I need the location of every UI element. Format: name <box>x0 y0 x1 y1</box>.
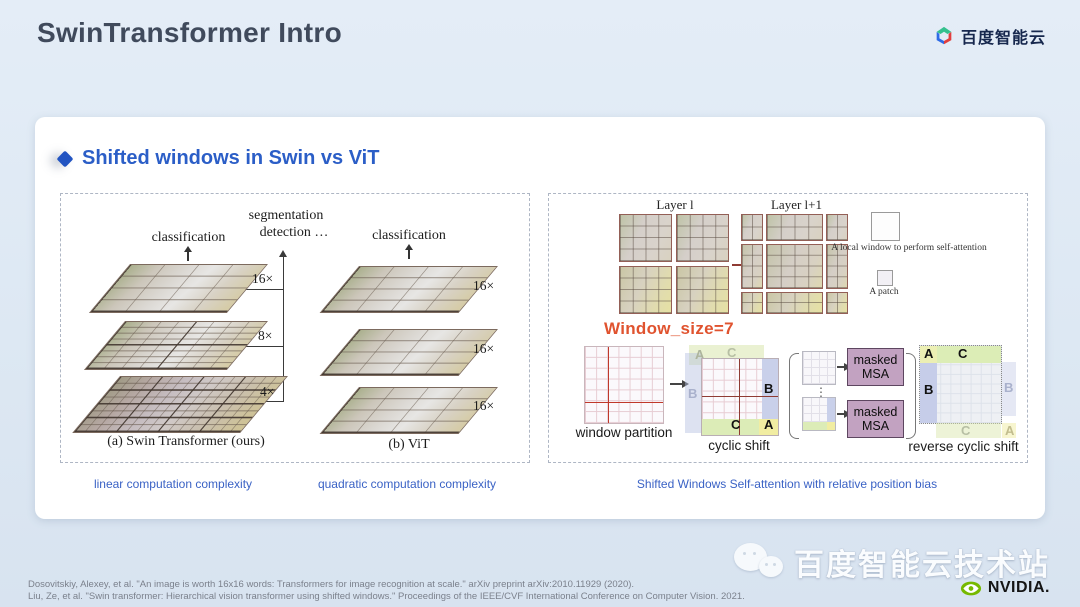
legend-patch-label: A patch <box>839 287 929 299</box>
swin-detection-label: detection … <box>229 225 359 241</box>
connector-stub <box>241 346 284 347</box>
connector-stub <box>245 289 284 290</box>
layer-l-label: Layer l <box>635 197 715 213</box>
swin-feature-map-4x <box>72 376 288 433</box>
cyclic-shift-label: cyclic shift <box>689 438 789 453</box>
swin-scale-8x: 8× <box>258 328 272 344</box>
label-b: B <box>764 381 773 396</box>
arrow-right-icon <box>837 366 845 368</box>
nvidia-logo: NVIDIA. <box>960 579 1050 597</box>
vit-feature-map-2 <box>320 329 498 376</box>
baidu-cloud-logo-icon <box>933 25 955 47</box>
note-shifted-windows: Shifted Windows Self-attention with rela… <box>597 477 977 491</box>
citation-line-2: Liu, Ze, et al. "Swin transformer: Hiera… <box>28 591 745 602</box>
ghost-label-b: B <box>688 386 697 401</box>
vit-caption: (b) ViT <box>349 437 469 453</box>
window-batch-plain <box>802 351 836 385</box>
layer-l-image <box>619 214 729 314</box>
vit-scale-16x: 16× <box>473 341 494 357</box>
nvidia-wordmark: NVIDIA. <box>988 579 1050 597</box>
diamond-bullet-icon <box>57 150 74 167</box>
masked-msa-box: masked MSA <box>847 400 904 438</box>
arrow-right-icon <box>670 383 683 385</box>
content-card: Shifted windows in Swin vs ViT classific… <box>35 117 1045 519</box>
arrow-up-icon <box>187 248 189 261</box>
note-linear-complexity: linear computation complexity <box>63 477 283 491</box>
nvidia-eye-icon <box>960 581 982 596</box>
label-a: A <box>924 346 933 361</box>
label-b: B <box>924 382 933 397</box>
arrow-up-icon <box>408 246 410 259</box>
brand-logo: 百度智能云 <box>933 24 1046 48</box>
slide-background: SwinTransformer Intro 百度智能云 Shifted wind… <box>0 0 1080 607</box>
legend-window-label: A local window to perform self-attention <box>819 243 999 255</box>
masked-msa-box: masked MSA <box>847 348 904 386</box>
swin-segmentation-label: segmentation <box>221 208 351 224</box>
page-title: SwinTransformer Intro <box>37 17 342 49</box>
reverse-cyclic-shift-label: reverse cyclic shift <box>901 439 1026 454</box>
label-a: A <box>764 417 773 432</box>
swin-feature-map-16x <box>89 264 268 313</box>
swin-scale-4x: 4× <box>260 384 274 400</box>
layer-l1-image <box>741 214 848 314</box>
window-size-label: Window_size=7 <box>604 319 734 339</box>
ghost-label-c: C <box>961 423 970 438</box>
section-heading-row: Shifted windows in Swin vs ViT <box>59 147 379 170</box>
swin-feature-map-8x <box>84 321 268 370</box>
window-partition-label: window partition <box>554 425 694 440</box>
swin-scale-16x: 16× <box>252 271 273 287</box>
legend-patch-square <box>877 270 893 286</box>
vit-scale-16x: 16× <box>473 398 494 414</box>
watermark-text: 百度智能云技术站 <box>794 540 1050 584</box>
panel-shifted-window: Layer l Layer l+1 <box>548 193 1028 463</box>
vit-scale-16x: 16× <box>473 278 494 294</box>
note-quadratic-complexity: quadratic computation complexity <box>297 477 517 491</box>
ghost-label-a: A <box>1005 423 1014 438</box>
panel-swin-vs-vit: classification segmentation detection … … <box>60 193 530 463</box>
brand-name: 百度智能云 <box>961 24 1046 48</box>
ghost-label-b: B <box>1004 380 1013 395</box>
left-bracket-icon <box>789 353 799 439</box>
watermark-row: 百度智能云技术站 <box>734 540 1050 584</box>
window-batch-colored <box>802 397 836 431</box>
right-bracket-icon <box>906 353 916 439</box>
citation-line-1: Dosovitskiy, Alexey, et al. "An image is… <box>28 579 634 590</box>
wechat-icon <box>734 541 786 583</box>
label-c: C <box>731 417 740 432</box>
label-c: C <box>958 346 967 361</box>
vit-feature-map-1 <box>320 266 498 313</box>
legend-window-square <box>871 212 900 241</box>
cyclic-shift-square: B C A <box>701 358 779 436</box>
section-heading: Shifted windows in Swin vs ViT <box>82 147 379 170</box>
layer-l1-label: Layer l+1 <box>754 197 839 213</box>
reverse-cyclic-shift-square: A C B <box>919 345 1002 424</box>
vit-feature-map-3 <box>320 387 498 434</box>
arrow-right-icon <box>837 413 845 415</box>
swin-caption: (a) Swin Transformer (ours) <box>81 434 291 450</box>
window-partition-square <box>584 346 664 424</box>
